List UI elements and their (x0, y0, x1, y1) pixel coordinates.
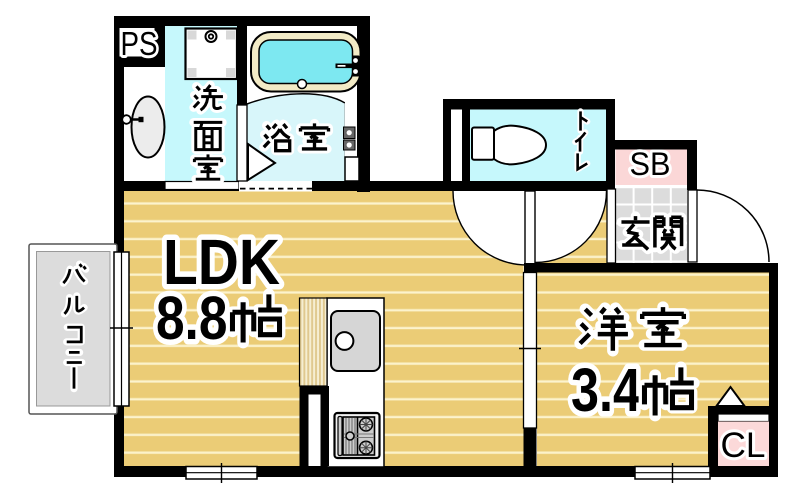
svg-text:3.4: 3.4 (571, 356, 641, 424)
svg-text:8.8: 8.8 (156, 284, 228, 352)
svg-text:PS: PS (121, 25, 158, 62)
svg-text:SB: SB (630, 146, 671, 182)
svg-text:CL: CL (721, 426, 766, 465)
